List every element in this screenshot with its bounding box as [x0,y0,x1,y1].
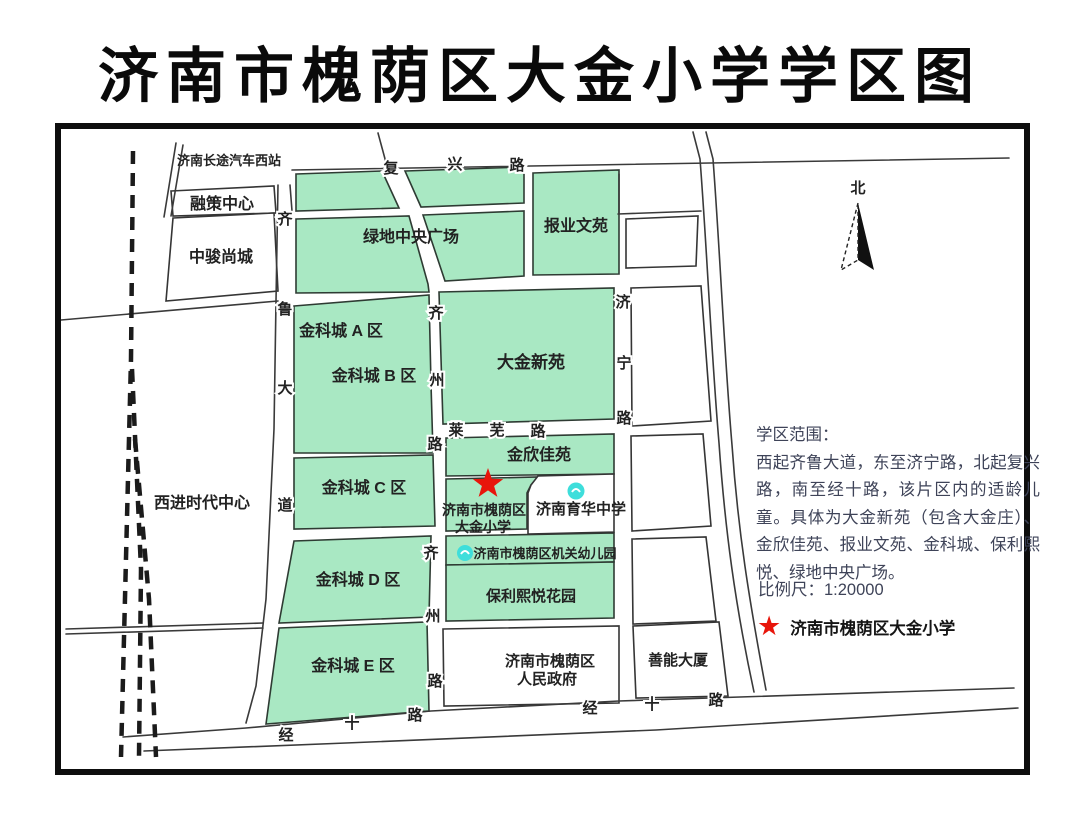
label-zhongjun: 中骏尚城 [189,247,253,266]
label-shanneng: 善能大厦 [648,651,709,669]
kindergarten-marker-icon [457,545,473,561]
road-label-qizhou-a2: 路 [427,435,443,453]
district-description: 学区范围： 西起齐鲁大道，东至济宁路，北起复兴路，南至经十路，该片区内的适龄儿童… [756,422,1040,587]
box-east-4 [632,537,716,624]
road-label-jingshi-a0: 经 [278,726,293,744]
box-east-3 [631,434,711,531]
district-description-body: 西起齐鲁大道，东至济宁路，北起复兴路，南至经十路，该片区内的适龄儿童。具体为大金… [756,450,1040,588]
railway-dashed-1 [121,151,133,757]
label-jinke-c: 金科城 C 区 [321,478,406,497]
road-label-laiwu-1: 芜 [489,421,504,439]
region-greenland-main-east [423,211,524,281]
road-label-qilu-1: 鲁 [277,300,292,318]
label-greenland-plaza: 绿地中央广场 [363,227,459,246]
road-label-qilu-2: 大 [277,379,292,397]
legend-star-icon: ★ [757,613,781,640]
region-greenland-main-west [296,216,429,293]
north-arrow-solid-half [858,203,874,270]
label-baoli-xiyue: 保利熙悦花园 [485,587,576,605]
road-label-jining-0: 济 [615,293,631,311]
road-label-laiwu-2: 路 [530,422,546,440]
north-label: 北 [850,180,865,197]
road-qilu-east-top [290,185,292,211]
label-school-line2: 大金小学 [455,519,511,535]
map-scale: 比例尺：1:20000 [758,576,884,600]
road-label-jining-1: 宁 [616,354,631,372]
label-kindergarten: 济南市槐荫区机关幼儿园 [473,546,616,561]
road-label-jingshi-b1: 十 [644,695,659,713]
road-fuxing-line [292,158,1009,170]
region-greenland-strip-east [405,167,524,207]
map-frame: 济南长途汽车西站 融策中心 中骏尚城 西进时代中心 绿地中央广场 报业文苑 金科… [55,123,1030,775]
road-label-qizhou-b0: 齐 [423,544,439,562]
road-label-qizhou-b1: 州 [424,608,440,625]
road-below-zhongjun [61,301,278,320]
road-label-jining-2: 路 [616,409,632,427]
road-label-jingshi-b2: 路 [708,691,724,709]
road-label-jingshi-b0: 经 [582,699,597,717]
yuhua-marker-icon [568,483,585,500]
road-label-fuxing-0: 复 [382,159,399,177]
box-east-2 [631,286,711,426]
box-east-1 [626,216,698,268]
page-title: 济南市槐荫区大金小学学区图 [0,28,1080,115]
school-district-map-page: 济南市槐荫区大金小学学区图 [0,0,1080,813]
road-label-jingshi-a1: 十 [344,714,359,732]
road-label-qizhou-a0: 齐 [428,304,444,322]
label-xijin-center: 西进时代中心 [154,493,250,512]
label-dajin-xinyuan: 大金新苑 [497,352,565,372]
label-yuhua-school: 济南育华中学 [536,500,626,518]
label-bus-station: 济南长途汽车西站 [177,153,281,168]
north-arrow-dashed-half [841,203,858,270]
road-label-fuxing-2: 路 [509,156,525,174]
road-label-qizhou-a1: 州 [428,372,444,389]
label-jinxin-jiayuan: 金欣佳苑 [506,445,571,464]
legend-school-label: 济南市槐荫区大金小学 [790,615,955,639]
label-jinke-e: 金科城 E 区 [310,656,395,675]
label-rongce-center: 融策中心 [190,194,254,213]
label-jinke-a: 金科城 A 区 [298,321,383,340]
railway-dashed-2 [132,369,141,757]
label-government-line2: 人民政府 [517,670,577,688]
road-northeast-block-line [618,211,701,214]
road-label-qilu-3: 道 [277,496,292,514]
label-school-line1: 济南市槐荫区 [442,502,526,518]
road-label-qizhou-b2: 路 [427,672,443,690]
road-label-qilu-0: 齐 [277,210,293,228]
region-greenland-strip-west [296,171,399,211]
road-label-laiwu-0: 莱 [448,421,463,439]
label-government-line1: 济南市槐荫区 [505,652,595,670]
label-jinke-b: 金科城 B 区 [331,366,416,385]
district-description-heading: 学区范围： [756,422,1040,450]
label-jinke-d: 金科城 D 区 [315,570,400,589]
label-baoye-wenyuan: 报业文苑 [544,216,608,235]
north-arrow: 北 [841,180,874,270]
road-label-jingshi-a2: 路 [407,706,423,724]
road-label-fuxing-1: 兴 [447,156,462,173]
legend: ★ 济南市槐荫区大金小学 [757,613,955,640]
railway-lines [121,151,156,757]
